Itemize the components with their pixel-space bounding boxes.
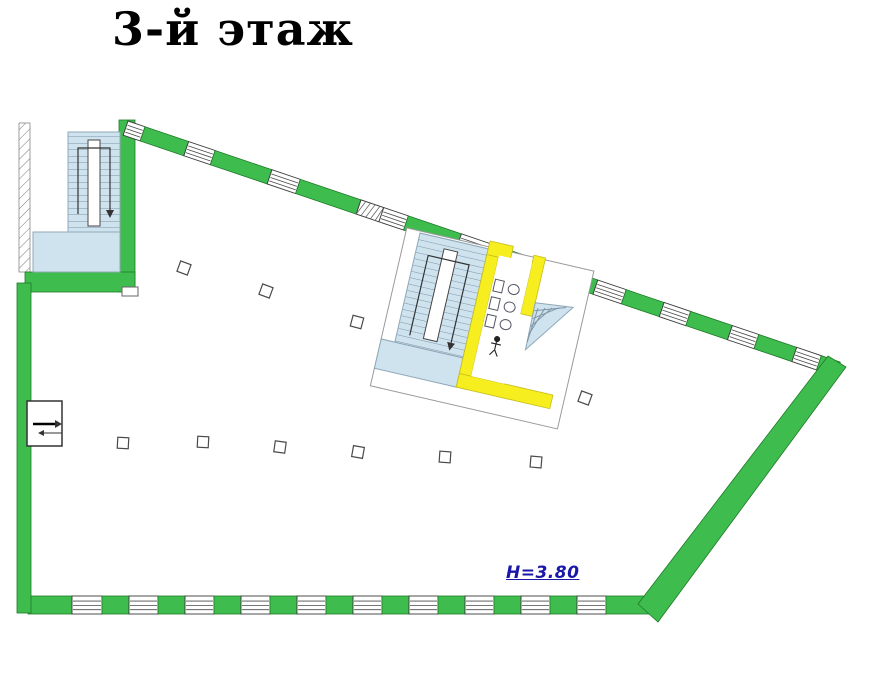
nw-door-opening [122,287,138,296]
wall-segment [754,335,797,362]
hatched-wall [19,123,30,272]
floor-plan-page: 3-й этаж H=3.80 [0,0,876,687]
wall-segment [158,596,185,614]
toilet-tank [485,314,496,328]
wall-segment [270,596,297,614]
wall-segment [28,596,72,614]
wall-segment [550,596,577,614]
wall-segment [102,596,129,614]
wall-segment [438,596,465,614]
wall-segment [382,596,409,614]
wall-segment [214,596,241,614]
column-marker [259,284,273,298]
wall-segment [296,179,361,214]
wall-segment [686,311,732,339]
perimeter-wall-bottom [28,596,652,614]
column-marker [578,391,592,405]
column-marker [439,451,451,463]
nw-stair-landing [33,232,120,272]
floor-plan-drawing [0,0,876,687]
central-staircase-block [370,222,595,429]
toilet-tank [493,279,504,293]
column-marker [274,441,286,453]
nw-wall-vertical [119,120,135,292]
column-marker [350,315,363,328]
wall-segment [621,290,664,317]
wall-segment [210,150,272,183]
entrance-block [27,401,62,446]
nw-wall-horizontal [25,272,135,292]
nw-staircase-block [19,120,138,296]
perimeter-wall-left [17,283,31,613]
wall-segment [326,596,353,614]
wall-segment [494,596,521,614]
column-marker [117,437,129,449]
toilet-tank [489,297,500,311]
column-marker [197,436,209,448]
column-marker [177,261,191,275]
perimeter-wall-right [638,356,846,622]
wall-segment [140,127,188,156]
column-marker [352,446,365,459]
nw-stair-divider [88,140,100,226]
column-marker [530,456,542,468]
